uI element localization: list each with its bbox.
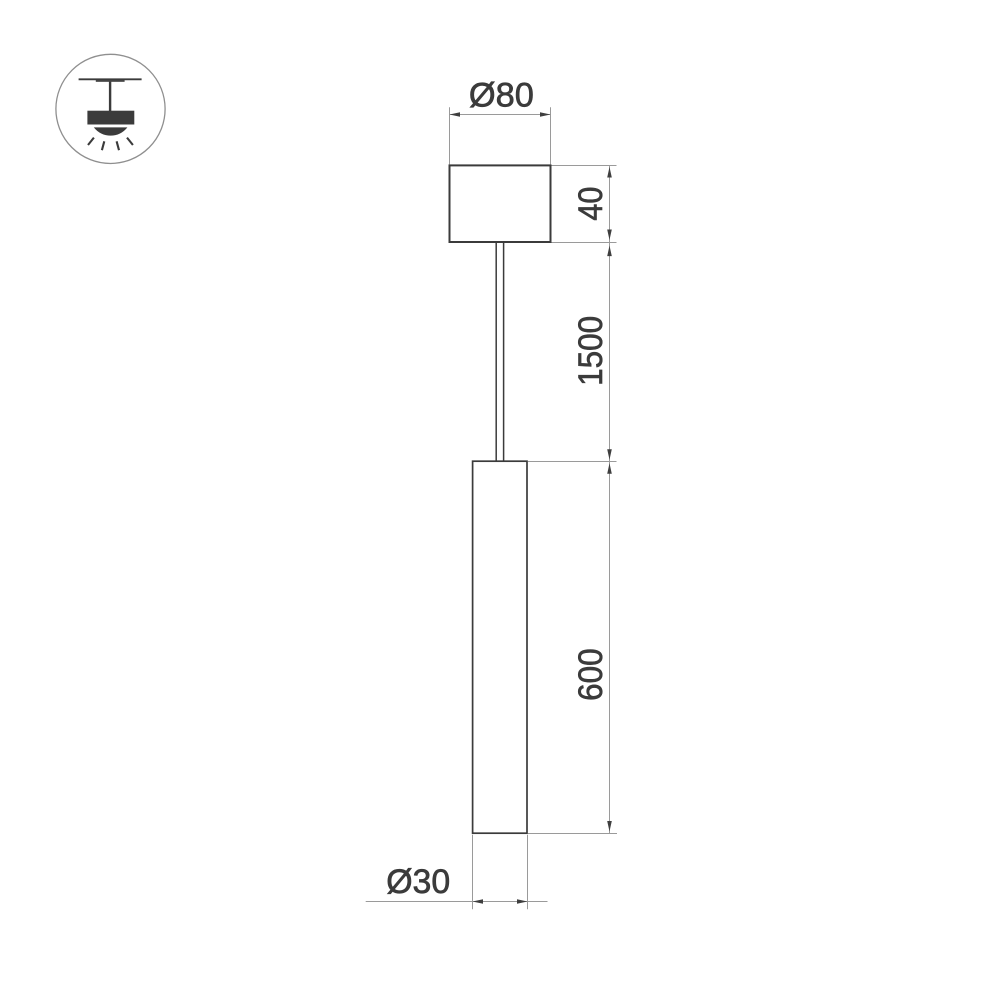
svg-text:600: 600 — [572, 648, 610, 701]
svg-text:Ø80: Ø80 — [469, 76, 534, 114]
svg-text:1500: 1500 — [572, 316, 610, 386]
svg-text:Ø30: Ø30 — [386, 863, 450, 901]
svg-text:40: 40 — [572, 187, 610, 221]
